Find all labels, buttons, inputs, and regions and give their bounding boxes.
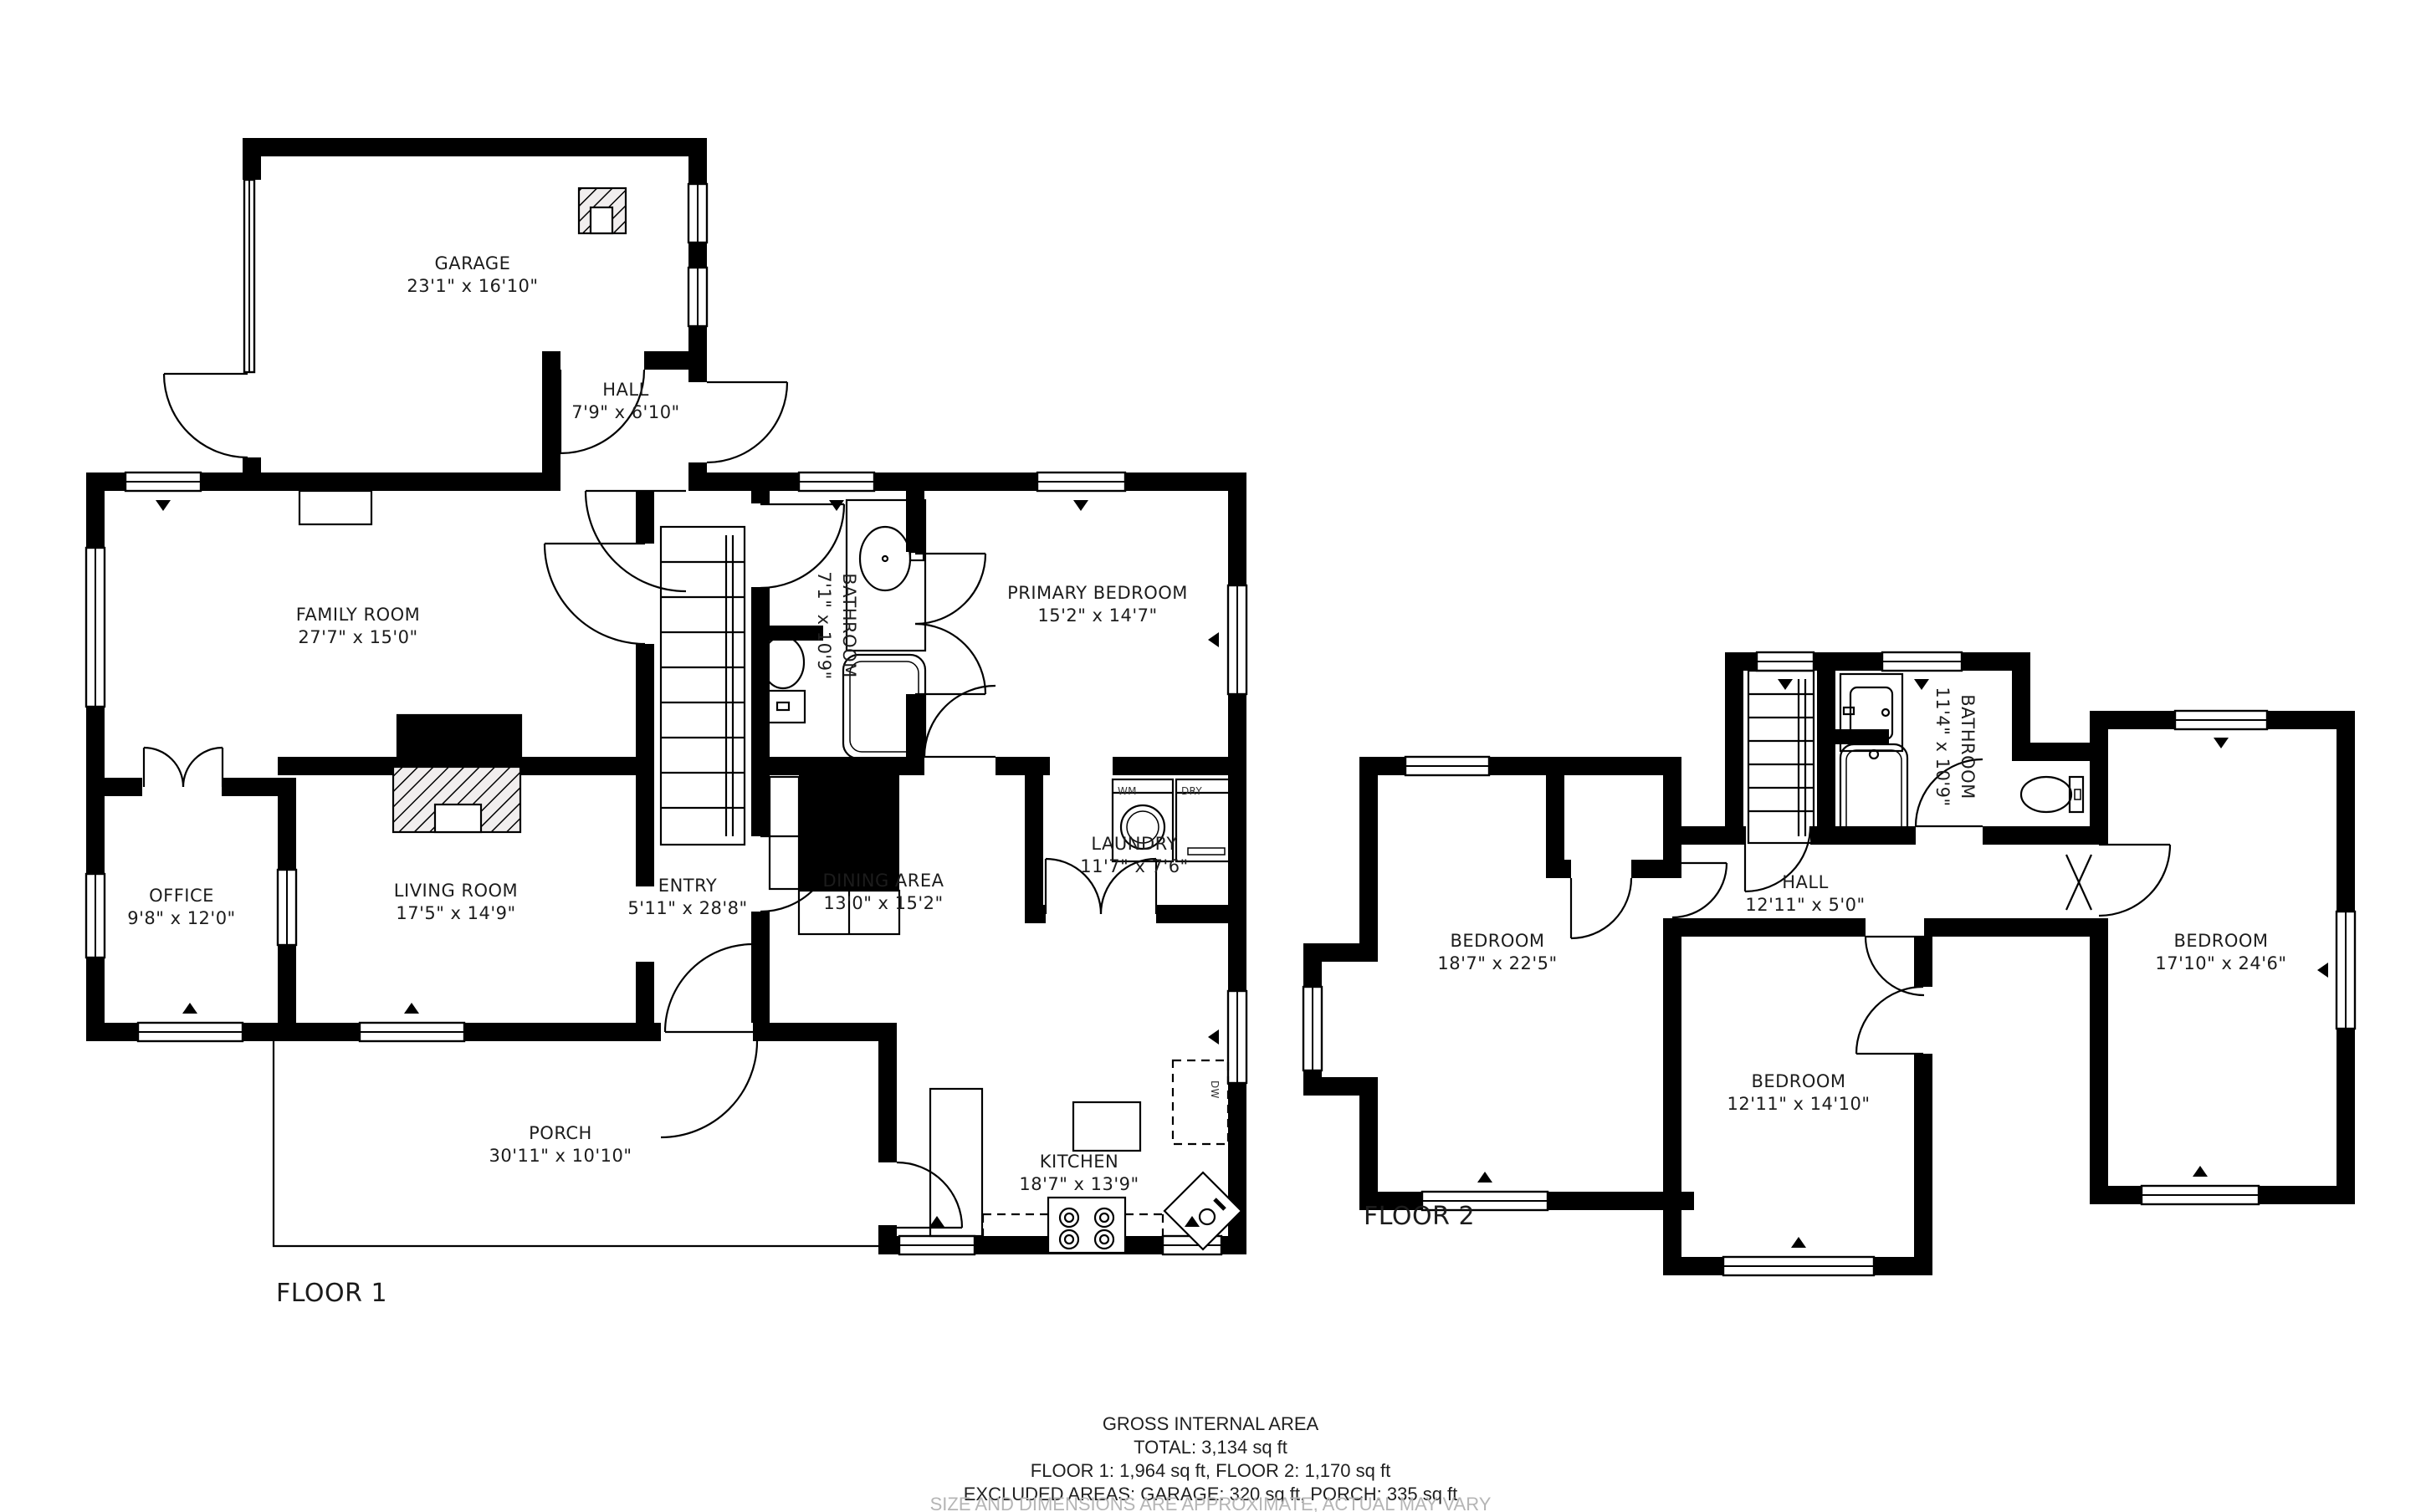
summary-heading: GROSS INTERNAL AREA (1103, 1413, 1319, 1434)
area-summary: GROSS INTERNAL AREA TOTAL: 3,134 sq ft F… (930, 1413, 1492, 1512)
door-closet-middle-bedroom (1856, 987, 1923, 1054)
room-dims-porch: 30'11" x 10'10" (489, 1146, 632, 1166)
window (86, 874, 105, 958)
stove-icon (1048, 1198, 1125, 1253)
door-hall-exterior (707, 382, 787, 462)
doorstep (299, 491, 371, 524)
window (1882, 652, 1962, 671)
door-closet-left-bedroom (1571, 878, 1631, 938)
room-label-porch: PORCH (529, 1123, 592, 1143)
window (1037, 472, 1125, 491)
room-dims-garage: 23'1" x 16'10" (407, 276, 538, 296)
floor2-title: FLOOR 2 (1364, 1202, 1475, 1231)
garage-door (244, 180, 254, 372)
room-dims-kitchen: 18'7" x 13'9" (1019, 1174, 1139, 1194)
dryer-label: DRY (1181, 785, 1202, 797)
stairs-icon (1748, 671, 1814, 843)
closet (770, 777, 799, 889)
floor2-doors (1571, 759, 2170, 1054)
water-heater-icon (579, 188, 626, 233)
window (799, 472, 874, 491)
window (2175, 711, 2267, 729)
room-dims-bedroom-left: 18'7" x 22'5" (1437, 953, 1557, 973)
window (360, 1023, 464, 1041)
room-dims-dining-area: 13'0" x 15'2" (823, 893, 943, 913)
floor1-windows (86, 180, 1246, 1254)
room-dims-bathroom1: 7'1" x 10'9" (814, 571, 834, 679)
window (138, 1023, 243, 1041)
floor1-walls (86, 138, 1246, 1254)
room-dims-bathroom2: 11'4" x 10'9" (1932, 687, 1953, 806)
window (2142, 1186, 2259, 1204)
room-label-bathroom2: BATHROOM (1958, 694, 1978, 799)
floor1-title: FLOOR 1 (276, 1279, 387, 1308)
window (899, 1236, 975, 1254)
window (278, 870, 296, 945)
window (125, 472, 201, 491)
room-label-hall2: HALL (1782, 872, 1829, 892)
window (1405, 757, 1489, 775)
summary-total: TOTAL: 3,134 sq ft (1134, 1437, 1287, 1458)
summary-disclaimer: SIZE AND DIMENSIONS ARE APPROXIMATE, ACT… (930, 1494, 1492, 1512)
room-label-laundry: LAUNDRY (1091, 834, 1177, 854)
double-door-office (144, 748, 223, 787)
floor-plan-page: GARAGE 23'1" x 16'10" HALL 7'9" x 6'10" … (0, 0, 2421, 1512)
window (86, 548, 105, 707)
washer-label: WM (1118, 785, 1137, 797)
room-label-entry: ENTRY (658, 876, 717, 896)
room-dims-living-room: 17'5" x 14'9" (396, 903, 515, 923)
room-label-bedroom-right: BEDROOM (2173, 931, 2268, 951)
room-label-living-room: LIVING ROOM (394, 881, 518, 901)
room-label-bedroom-left: BEDROOM (1450, 931, 1544, 951)
room-dims-primary-bedroom: 15'2" x 14'7" (1037, 605, 1157, 626)
door-corridor-family (545, 544, 645, 644)
room-dims-entry: 5'11" x 28'8" (627, 898, 747, 918)
window (2337, 912, 2355, 1029)
room-label-bathroom1: BATHROOM (839, 573, 859, 678)
room-dims-laundry: 11'7" x 7'6" (1080, 856, 1188, 876)
room-label-kitchen: KITCHEN (1040, 1152, 1119, 1172)
stairs-icon (661, 527, 745, 845)
room-dims-hall2: 12'11" x 5'0" (1745, 895, 1865, 915)
door-right-bedroom (2066, 845, 2170, 916)
porch-outline (274, 1041, 878, 1246)
window (1303, 987, 1322, 1070)
window (1757, 652, 1814, 671)
room-label-bedroom-middle: BEDROOM (1751, 1071, 1845, 1091)
room-label-office: OFFICE (149, 886, 214, 906)
summary-floors: FLOOR 1: 1,964 sq ft, FLOOR 2: 1,170 sq … (1031, 1460, 1390, 1481)
dishwasher-label: DW (1209, 1080, 1221, 1099)
room-dims-office: 9'8" x 12'0" (127, 908, 235, 928)
room-label-family-room: FAMILY ROOM (296, 605, 421, 625)
room-dims-hall1: 7'9" x 6'10" (571, 402, 679, 422)
window (1228, 991, 1246, 1083)
door-main-entrance (661, 944, 757, 1137)
room-dims-family-room: 27'7" x 15'0" (298, 627, 417, 647)
room-label-garage: GARAGE (435, 253, 511, 273)
room-label-dining-area: DINING AREA (822, 871, 944, 891)
door-primary-bedroom (924, 686, 996, 757)
window (688, 268, 707, 326)
room-dims-bedroom-middle: 12'11" x 14'10" (1727, 1094, 1870, 1114)
fireplace-icon (393, 715, 521, 832)
door-garage-exterior (164, 374, 248, 457)
window (1228, 585, 1246, 694)
room-dims-bedroom-right: 17'10" x 24'6" (2155, 953, 2286, 973)
room-label-primary-bedroom: PRIMARY BEDROOM (1007, 583, 1188, 603)
window (688, 184, 707, 243)
room-label-hall1: HALL (602, 380, 649, 400)
floor-plan-drawing: GARAGE 23'1" x 16'10" HALL 7'9" x 6'10" … (0, 0, 2421, 1512)
toilet-icon (2021, 777, 2083, 812)
window (1723, 1257, 1874, 1275)
